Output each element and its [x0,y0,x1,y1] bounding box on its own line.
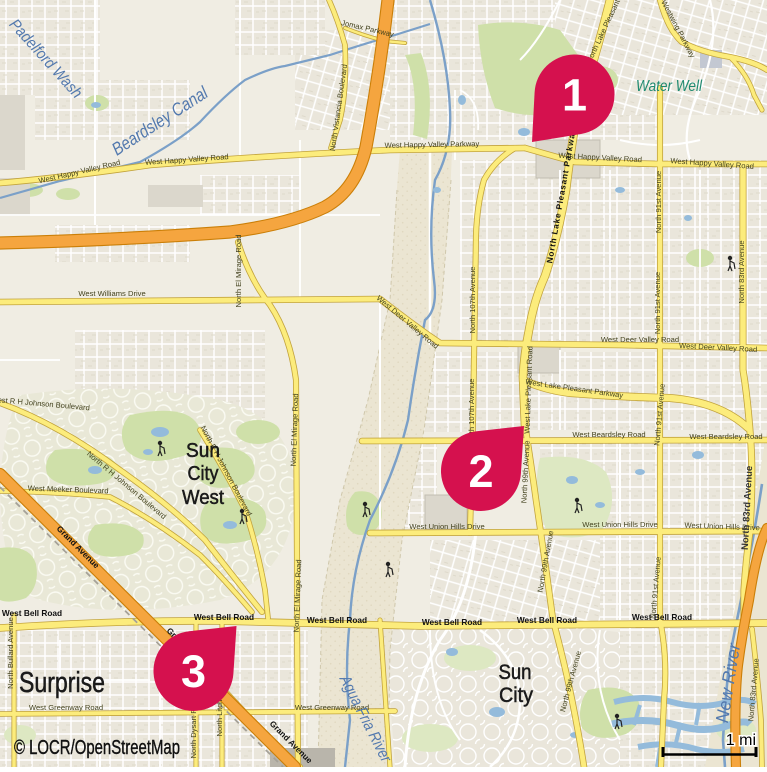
svg-text:West Williams Drive: West Williams Drive [78,289,145,298]
svg-text:West Bell Road: West Bell Road [517,615,577,625]
svg-text:West: West [182,487,224,509]
svg-text:North El Mirage Road: North El Mirage Road [234,234,243,307]
svg-text:Surprise: Surprise [19,667,105,699]
svg-text:West Bell Road: West Bell Road [194,612,254,622]
svg-text:North 107th Avenue: North 107th Avenue [468,267,477,334]
svg-text:West Bell Road: West Bell Road [2,608,62,618]
svg-text:North 91st Avenue: North 91st Avenue [654,171,663,233]
svg-text:Sun: Sun [499,661,532,684]
svg-text:West Happy Valley Parkway: West Happy Valley Parkway [385,139,480,150]
svg-text:West Bell Road: West Bell Road [632,612,692,622]
svg-text:West Beardsley Road: West Beardsley Road [689,432,762,441]
svg-text:3: 3 [181,646,206,697]
svg-text:West Deer Valley Road: West Deer Valley Road [601,335,679,344]
svg-text:West Bell Road: West Bell Road [422,617,482,627]
svg-text:Water Well: Water Well [636,78,702,95]
svg-text:1 mi: 1 mi [726,732,756,749]
svg-text:West Union Hills Drive: West Union Hills Drive [582,520,657,529]
svg-text:West Union Hills Drive: West Union Hills Drive [409,522,484,531]
svg-text:North 83rd Avenue: North 83rd Avenue [737,240,746,303]
svg-text:West Beardsley Road: West Beardsley Road [572,430,645,439]
svg-text:North Bullard Avenue: North Bullard Avenue [6,617,15,689]
svg-text:West Greenway Road: West Greenway Road [29,703,103,712]
svg-text:1: 1 [562,70,587,121]
svg-text:City: City [188,463,219,485]
svg-text:North 91st Avenue: North 91st Avenue [653,272,662,334]
svg-text:City: City [499,684,533,707]
svg-text:© LOCR/OpenStreetMap: © LOCR/OpenStreetMap [14,737,180,759]
svg-text:2: 2 [468,446,493,497]
svg-text:West Bell Road: West Bell Road [307,615,367,625]
svg-text:Sun: Sun [186,440,220,462]
